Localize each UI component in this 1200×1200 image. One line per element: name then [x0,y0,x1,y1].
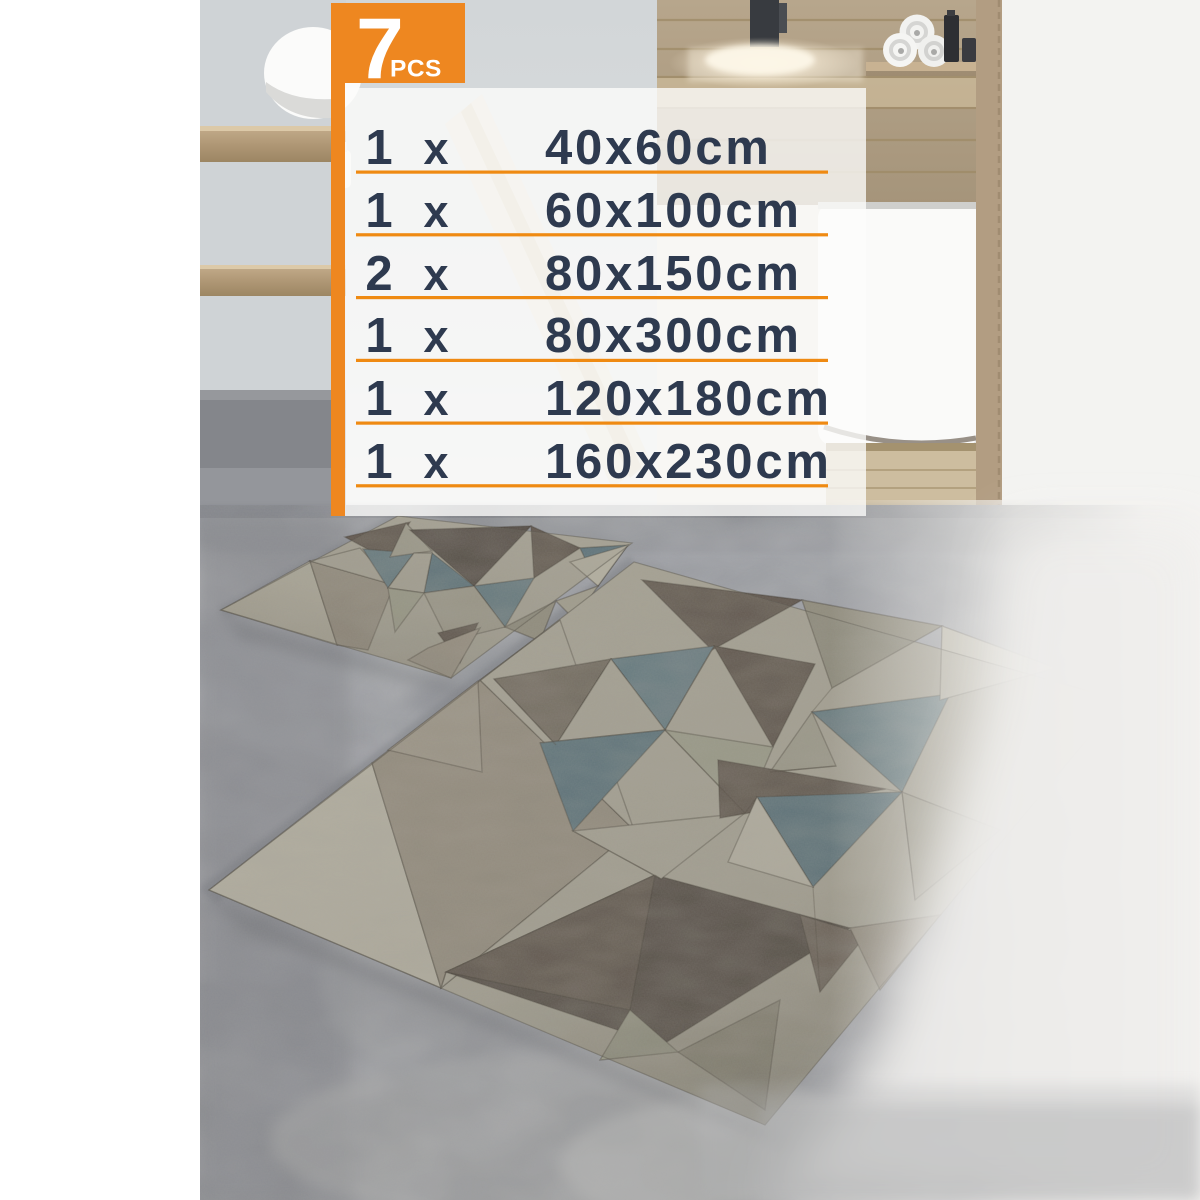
svg-text:x: x [423,437,448,488]
svg-text:x: x [423,123,448,174]
svg-text:120x180cm: 120x180cm [545,372,832,426]
svg-text:x: x [423,249,448,300]
svg-text:80x150cm: 80x150cm [545,247,802,301]
svg-text:1: 1 [365,184,392,238]
svg-text:160x230cm: 160x230cm [545,435,832,489]
svg-text:7: 7 [356,1,404,97]
svg-text:2: 2 [365,247,392,301]
svg-text:x: x [423,186,448,237]
svg-text:x: x [423,311,448,362]
svg-text:1: 1 [365,309,392,363]
svg-text:1: 1 [365,372,392,426]
svg-text:80x300cm: 80x300cm [545,309,802,363]
svg-text:x: x [423,374,448,425]
svg-text:60x100cm: 60x100cm [545,184,802,238]
svg-text:1: 1 [365,121,392,175]
svg-text:40x60cm: 40x60cm [545,121,772,175]
svg-text:1: 1 [365,435,392,489]
svg-text:PCS: PCS [390,56,442,83]
